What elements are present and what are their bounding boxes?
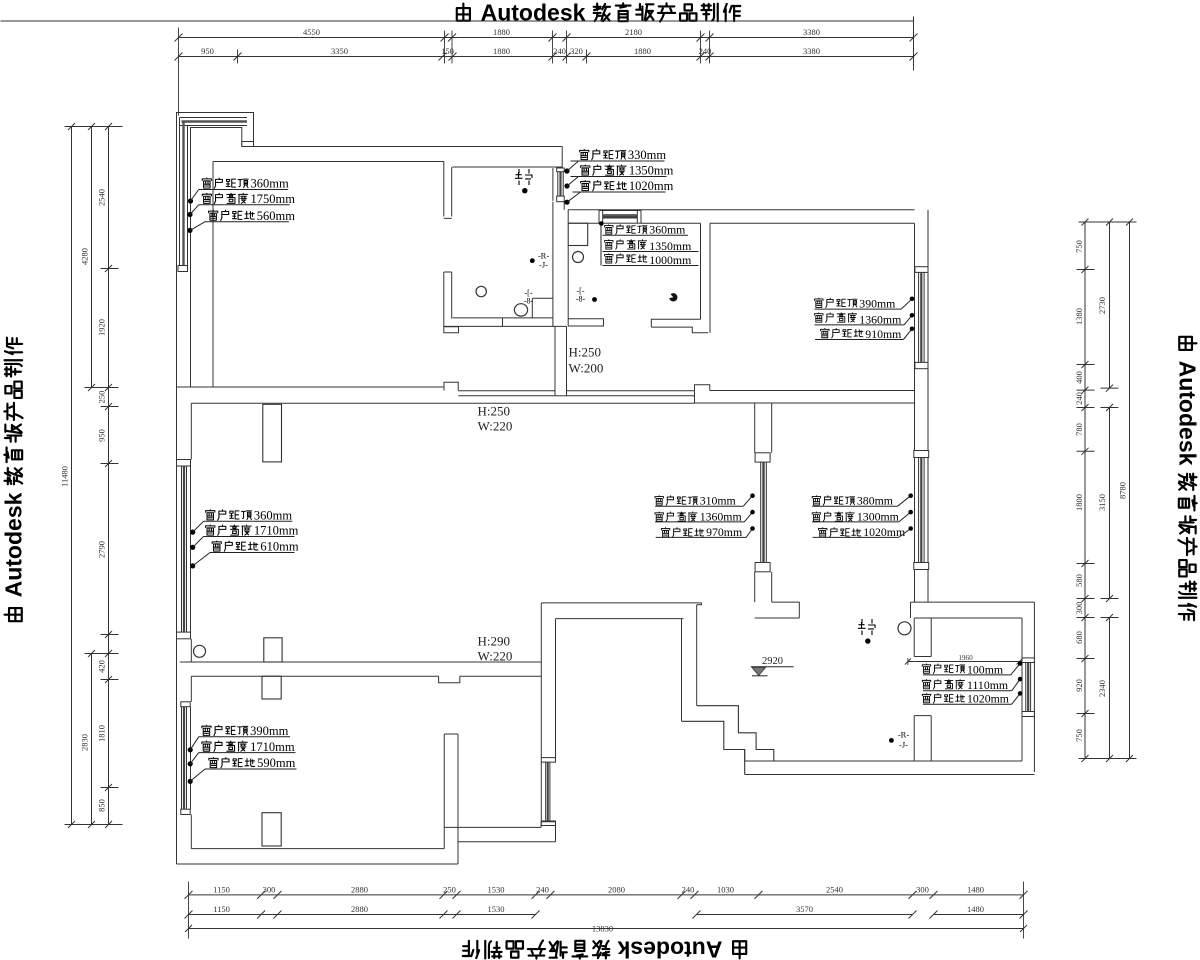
svg-text:1000mm: 1000mm (649, 253, 691, 267)
svg-text:-J-: -J- (539, 260, 548, 270)
svg-text:2880: 2880 (351, 885, 368, 895)
svg-text:Autodesk: Autodesk (617, 936, 722, 960)
svg-text:1360mm: 1360mm (700, 509, 742, 523)
svg-text:560mm: 560mm (257, 209, 295, 223)
svg-text:590mm: 590mm (257, 756, 295, 770)
svg-text:H:290: H:290 (478, 634, 511, 649)
svg-text:330mm: 330mm (628, 148, 666, 162)
svg-text:2540: 2540 (826, 885, 843, 895)
svg-text:H:250: H:250 (569, 345, 602, 360)
svg-text:Autodesk: Autodesk (481, 0, 586, 26)
svg-text:1710mm: 1710mm (254, 524, 299, 538)
svg-text:240: 240 (1074, 392, 1084, 405)
svg-text:11480: 11480 (60, 466, 70, 487)
svg-text:-8-: -8- (524, 297, 534, 306)
svg-text:910mm: 910mm (865, 327, 901, 341)
svg-text:1530: 1530 (488, 885, 505, 895)
svg-text:1020mm: 1020mm (967, 692, 1009, 706)
svg-text:780: 780 (1074, 423, 1084, 436)
svg-text:390mm: 390mm (250, 724, 288, 738)
svg-text:300: 300 (916, 885, 929, 895)
svg-text:950: 950 (97, 429, 107, 442)
svg-text:970mm: 970mm (706, 525, 742, 539)
svg-text:1150: 1150 (213, 885, 230, 895)
svg-text:1880: 1880 (493, 46, 510, 56)
svg-text:2540: 2540 (97, 189, 107, 206)
svg-text:3350: 3350 (331, 46, 348, 56)
svg-text:1530: 1530 (488, 904, 505, 914)
svg-text:1480: 1480 (967, 885, 984, 895)
svg-text:310mm: 310mm (700, 494, 736, 508)
svg-text:240: 240 (553, 46, 566, 56)
svg-text:1380: 1380 (1074, 308, 1084, 325)
svg-text:2830: 2830 (80, 734, 90, 751)
svg-text:-8-: -8- (576, 295, 586, 304)
svg-text:240: 240 (536, 885, 549, 895)
svg-text:2790: 2790 (97, 541, 107, 558)
svg-text:1750mm: 1750mm (251, 192, 296, 206)
svg-text:1350mm: 1350mm (649, 239, 691, 253)
svg-text:-R-: -R- (898, 730, 910, 740)
svg-text:1300mm: 1300mm (857, 509, 899, 523)
svg-text:300: 300 (263, 885, 276, 895)
svg-text:950: 950 (201, 46, 214, 56)
svg-text:2730: 2730 (1097, 297, 1107, 314)
svg-text:360mm: 360mm (254, 509, 292, 523)
svg-text:1710mm: 1710mm (250, 740, 295, 754)
svg-text:240: 240 (682, 885, 695, 895)
svg-text:1880: 1880 (493, 27, 510, 37)
svg-text:W:220: W:220 (478, 649, 513, 664)
svg-text:380mm: 380mm (857, 494, 893, 508)
svg-text:4550: 4550 (303, 27, 320, 37)
svg-text:1030: 1030 (717, 885, 734, 895)
svg-text:400: 400 (1074, 371, 1084, 384)
svg-text:250: 250 (97, 391, 107, 404)
svg-text:1960: 1960 (958, 654, 973, 662)
svg-text:1150: 1150 (213, 904, 230, 914)
svg-text:750: 750 (1074, 729, 1084, 742)
svg-text:4280: 4280 (80, 248, 90, 265)
svg-text:3380: 3380 (803, 27, 820, 37)
svg-text:2880: 2880 (351, 904, 368, 914)
svg-text:360mm: 360mm (649, 223, 685, 237)
svg-text:420: 420 (97, 660, 107, 673)
svg-text:920: 920 (1074, 679, 1084, 692)
svg-text:1920: 1920 (97, 319, 107, 336)
svg-text:610mm: 610mm (260, 540, 298, 554)
svg-text:750: 750 (1074, 240, 1084, 253)
svg-text:1810: 1810 (97, 725, 107, 742)
svg-text:1800: 1800 (1074, 494, 1084, 511)
svg-text:1350mm: 1350mm (629, 164, 674, 178)
svg-text:8780: 8780 (1118, 482, 1128, 499)
svg-text:850: 850 (97, 799, 107, 812)
svg-text:1110mm: 1110mm (967, 678, 1008, 692)
svg-text:250: 250 (443, 885, 456, 895)
svg-text:H:250: H:250 (478, 404, 511, 419)
svg-text:3570: 3570 (796, 904, 813, 914)
svg-text:1360mm: 1360mm (859, 312, 901, 326)
svg-text:1880: 1880 (634, 46, 651, 56)
svg-text:320: 320 (570, 46, 583, 56)
svg-text:580: 580 (1074, 574, 1084, 587)
svg-text:390mm: 390mm (859, 297, 895, 311)
svg-text:100mm: 100mm (967, 662, 1003, 676)
svg-text:1020mm: 1020mm (629, 179, 674, 193)
svg-text:2340: 2340 (1097, 680, 1107, 697)
svg-text:Autodesk: Autodesk (1174, 361, 1200, 466)
svg-text:360mm: 360mm (251, 177, 289, 191)
svg-text:Autodesk: Autodesk (1, 492, 27, 597)
svg-text:3380: 3380 (803, 46, 820, 56)
svg-text:2080: 2080 (608, 885, 625, 895)
svg-text:13830: 13830 (592, 924, 613, 934)
svg-text:2920: 2920 (762, 656, 783, 667)
svg-text:W:200: W:200 (569, 361, 604, 376)
svg-text:1020mm: 1020mm (863, 525, 905, 539)
svg-text:3150: 3150 (1097, 494, 1107, 511)
svg-text:1480: 1480 (967, 904, 984, 914)
svg-text:W:220: W:220 (478, 419, 513, 434)
svg-text:300: 300 (1074, 602, 1084, 615)
svg-text:2180: 2180 (625, 27, 642, 37)
svg-text:-J-: -J- (899, 740, 908, 750)
svg-text:680: 680 (1074, 631, 1084, 644)
